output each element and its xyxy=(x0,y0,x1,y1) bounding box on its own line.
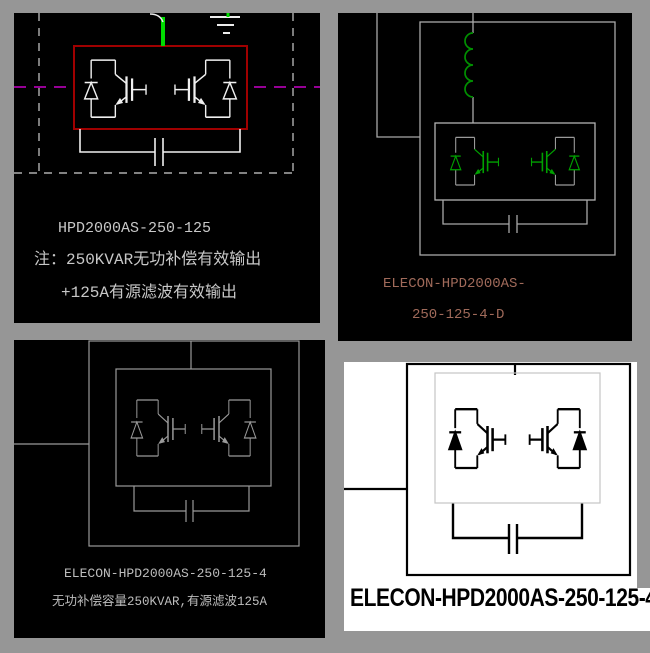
igbt-symbol xyxy=(530,409,586,468)
model-title: ELECON-HPD2000AS-250-125-4 xyxy=(64,566,267,582)
capacitor-symbol xyxy=(80,129,240,166)
igbt-symbol xyxy=(131,400,185,456)
igbt-module-box xyxy=(435,373,600,503)
ground-icon xyxy=(210,13,240,33)
igbt-symbol xyxy=(202,400,256,456)
model-line-1: ELECON-HPD2000AS- xyxy=(383,276,526,293)
panel-bottom-right: ELECON-HPD2000AS-250-125-4 xyxy=(344,362,650,631)
note-line-1: 注：250KVAR无功补偿有效输出 xyxy=(34,251,261,270)
circuit-diagram-bottom-left xyxy=(14,340,325,638)
corner-notch xyxy=(637,362,650,588)
cad-collage: HPD2000AS-250-125 注：250KVAR无功补偿有效输出 +125… xyxy=(0,0,650,653)
left-wire xyxy=(377,13,420,137)
capacitor-symbol xyxy=(453,503,582,554)
note-line-2: +125A有源滤波有效输出 xyxy=(61,284,237,303)
capacitor-symbol xyxy=(134,486,249,522)
igbt-symbol xyxy=(449,409,505,468)
capacitor-symbol xyxy=(443,200,587,233)
outer-wire-box xyxy=(89,341,299,546)
panel-top-right: ELECON-HPD2000AS- 250-125-4-D xyxy=(338,13,632,341)
model-line-2: 250-125-4-D xyxy=(412,307,504,324)
igbt-module-box xyxy=(435,123,595,200)
igbt-symbol xyxy=(532,137,580,185)
model-title: ELECON-HPD2000AS-250-125-4 xyxy=(350,583,650,613)
note-line: 无功补偿容量250KVAR,有源滤波125A xyxy=(52,595,267,610)
panel-bottom-left: ELECON-HPD2000AS-250-125-4 无功补偿容量250KVAR… xyxy=(14,340,325,638)
inductor-icon xyxy=(465,33,473,97)
circuit-diagram-top-left xyxy=(14,13,320,323)
panel-top-left: HPD2000AS-250-125 注：250KVAR无功补偿有效输出 +125… xyxy=(14,13,320,323)
igbt-symbol xyxy=(451,137,499,185)
model-title: HPD2000AS-250-125 xyxy=(58,220,211,238)
outer-wire-box xyxy=(407,364,630,575)
